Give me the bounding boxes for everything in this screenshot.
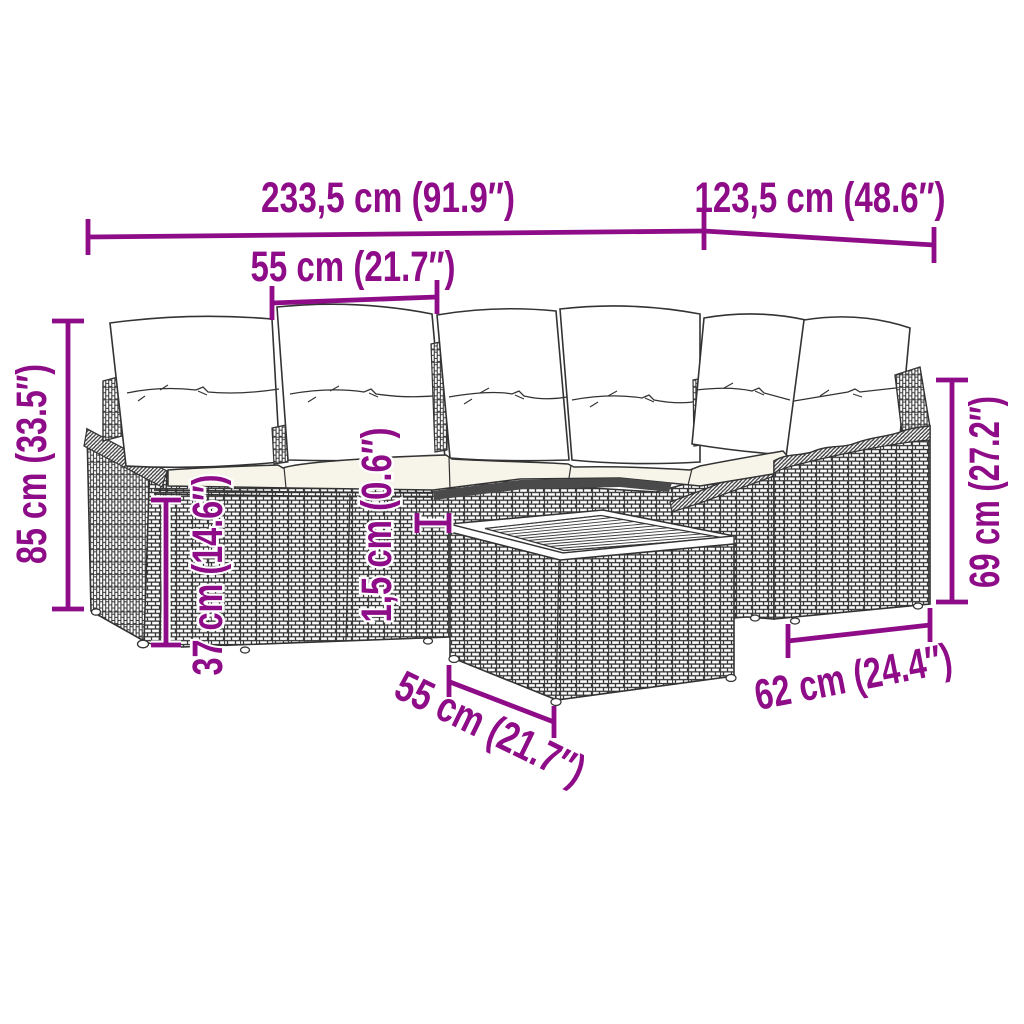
svg-text:123,5 cm (48.6″): 123,5 cm (48.6″) [695,174,946,222]
svg-text:85 cm (33.5″): 85 cm (33.5″) [8,364,56,564]
svg-text:69 cm (27.2″): 69 cm (27.2″) [961,396,1009,588]
svg-text:1,5 cm (0.6″): 1,5 cm (0.6″) [353,428,401,623]
svg-text:55 cm (21.7″): 55 cm (21.7″) [251,243,456,291]
svg-text:233,5 cm (91.9″): 233,5 cm (91.9″) [261,174,515,222]
svg-text:37 cm (14.6″): 37 cm (14.6″) [184,475,232,676]
